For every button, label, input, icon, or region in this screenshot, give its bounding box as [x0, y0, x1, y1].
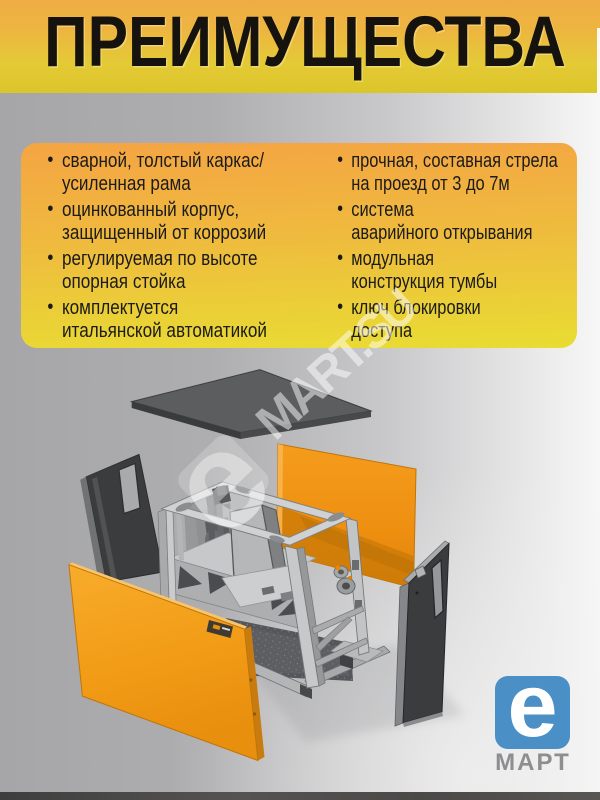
svg-text:MART.SU: MART.SU: [246, 280, 427, 450]
